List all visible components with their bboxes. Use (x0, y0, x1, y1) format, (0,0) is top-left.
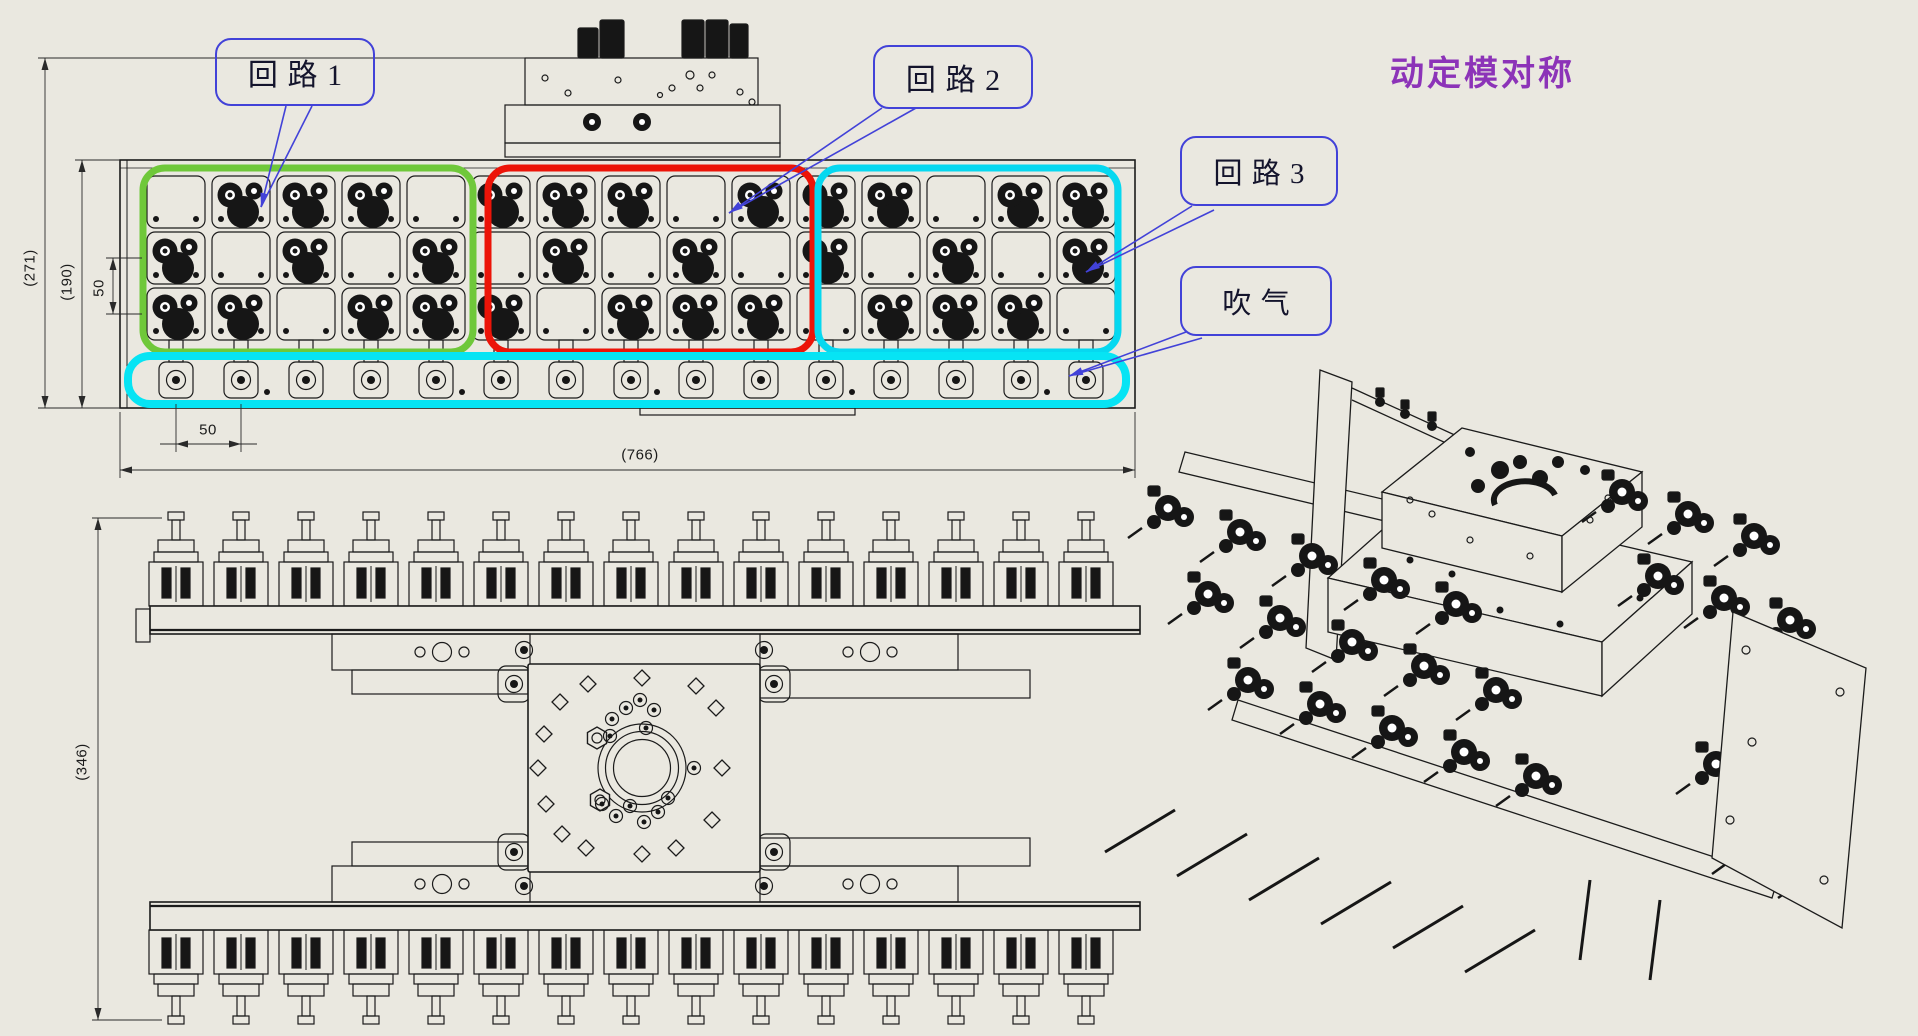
callout-blow: 吹气 (1180, 266, 1332, 336)
engineering-line-art (0, 0, 1918, 1036)
callout-loop1-label: 回路1 (248, 50, 352, 94)
dim-overall-width: (766) (621, 447, 659, 464)
dim-col-pitch: 50 (199, 422, 217, 439)
dim-overall-height: (271) (22, 249, 39, 287)
top-view-mount (505, 20, 780, 157)
callout-loop3: 回路3 (1180, 136, 1338, 206)
drawing-note-symmetry: 动定模对称 (1390, 46, 1575, 95)
dim-plate-height: (190) (59, 263, 76, 301)
dim-row-pitch: 50 (91, 279, 108, 297)
callout-blow-label: 吹气 (1222, 280, 1299, 322)
callout-loop2-label: 回路2 (906, 55, 1010, 99)
dim-front-height: (346) (74, 743, 91, 781)
callout-loop2: 回路2 (873, 45, 1033, 109)
callout-loop3-label: 回路3 (1213, 150, 1313, 192)
callout-loop1: 回路1 (215, 38, 375, 106)
isometric-view (1105, 370, 1866, 980)
cad-screenshot-root: 回路1 回路2 回路3 吹气 动定模对称 (271) (190) 50 50 (… (0, 0, 1918, 1036)
front-view-center-plate (498, 642, 790, 895)
